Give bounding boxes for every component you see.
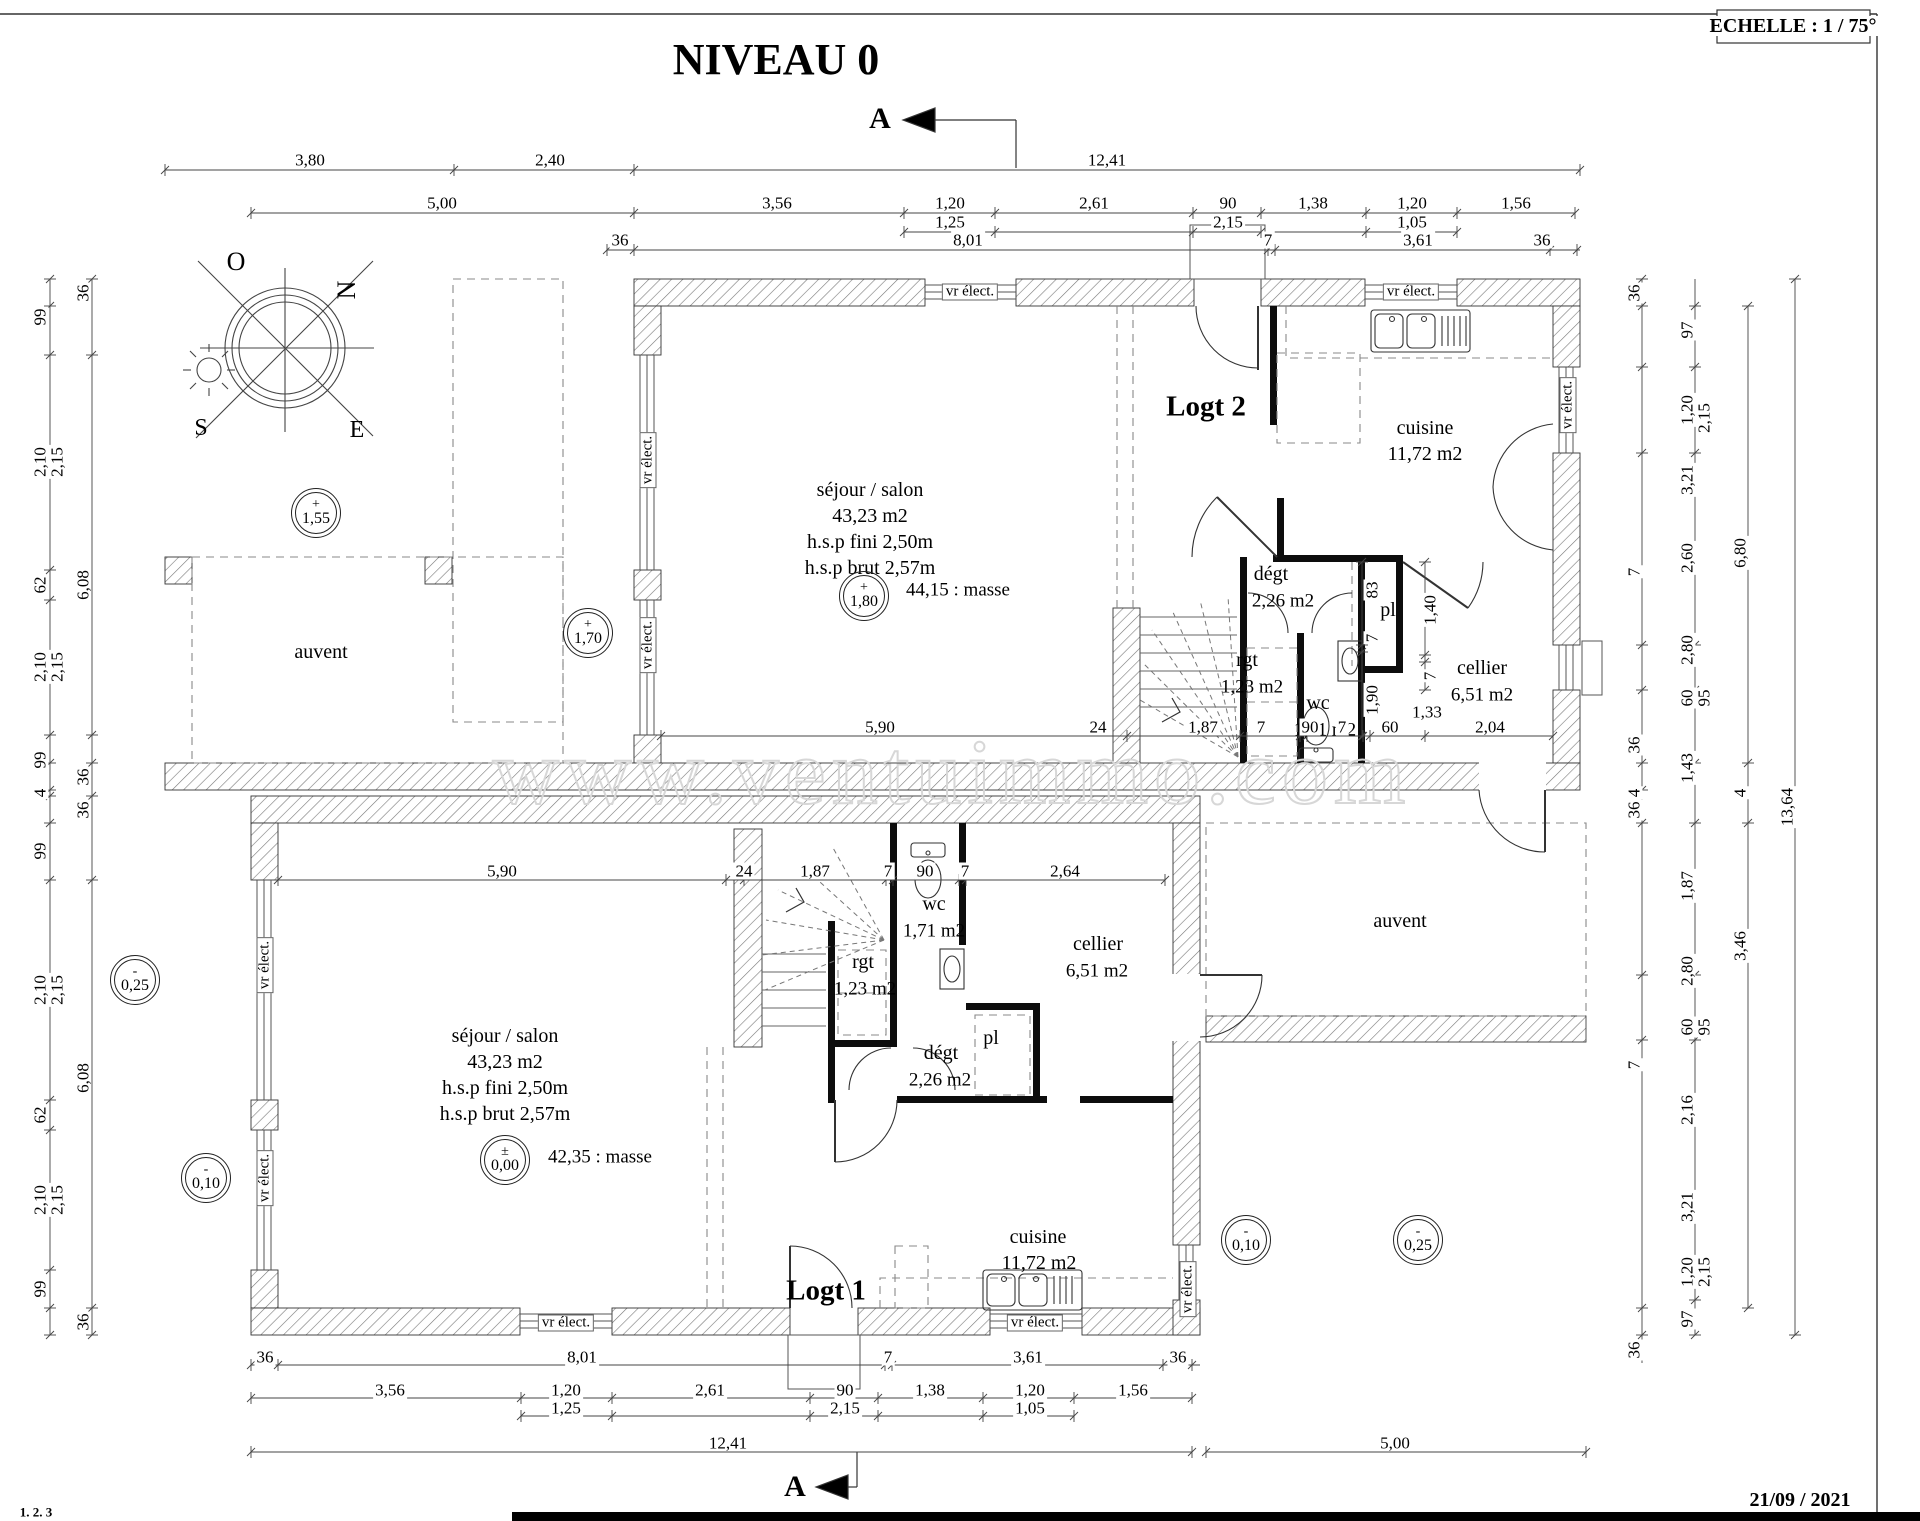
room-label: 1,71 m2 [903, 922, 965, 941]
compass-label: N [334, 281, 360, 300]
dim-label: 7 [1626, 566, 1643, 579]
dim-label: 2,10 [32, 445, 49, 479]
dim-label: 60 [1679, 688, 1696, 709]
dim-label: 95 [1696, 688, 1713, 709]
watermark: www.ventuimmo.com [493, 719, 1412, 825]
room-label: 43,23 m2 [467, 1052, 543, 1072]
dim-label: 1,38 [913, 1382, 947, 1399]
dim-label: 2,80 [1679, 954, 1696, 988]
dim-label: 1,87 [1679, 869, 1696, 903]
dim-label: 3,56 [760, 195, 794, 212]
room-label: h.s.p fini 2,50m [442, 1078, 568, 1098]
date-stamp: 21/09 / 2021 [1747, 1490, 1852, 1510]
dim-label: 7 [1422, 670, 1439, 683]
stairs-logt1 [762, 954, 826, 1026]
dim-label: 99 [32, 750, 49, 771]
level-marker: -0,25 [114, 959, 156, 1001]
window-label: vr élect. [1383, 284, 1439, 301]
window-label: vr élect. [1560, 377, 1577, 433]
dim-label: 3,46 [1732, 929, 1749, 963]
dim-label: 12,41 [707, 1435, 749, 1452]
room-label: 2,26 m2 [909, 1071, 971, 1090]
dim-label: 4 [1626, 787, 1643, 800]
dim-label: 2,61 [1077, 195, 1111, 212]
dim-label: 1,25 [549, 1400, 583, 1417]
level-value: 0,25 [1404, 1238, 1432, 1254]
dim-label: 2,15 [49, 650, 66, 684]
level-marker: -0,25 [1397, 1219, 1439, 1261]
dim-label: 36 [75, 767, 92, 788]
room-label: 6,51 m2 [1066, 962, 1128, 981]
room-label: cuisine [1010, 1227, 1067, 1247]
dim-label: 6,08 [75, 1061, 92, 1095]
room-label: 42,35 : masse [548, 1148, 652, 1167]
dim-label: 3,80 [293, 152, 327, 169]
level-sign: - [204, 1164, 209, 1175]
room-label: rgt [1236, 650, 1258, 670]
dim-label: 62 [32, 575, 49, 596]
dim-label: 24 [734, 863, 755, 880]
room-label: 11,72 m2 [1388, 444, 1463, 464]
window-label: vr élect. [257, 1150, 274, 1206]
level-value: 1,70 [574, 631, 602, 647]
dim-label: 62 [32, 1105, 49, 1126]
dim-label: 36 [1626, 735, 1643, 756]
dim-label: 8,01 [951, 232, 985, 249]
room-label: wc [1306, 693, 1329, 713]
level-sign: - [1416, 1226, 1421, 1237]
dim-label: 7 [1626, 1059, 1643, 1072]
level-marker: -0,10 [185, 1157, 227, 1199]
room-label: cuisine [1397, 418, 1454, 438]
dim-label: 1,20 [1679, 1255, 1696, 1289]
dim-label: 3,56 [373, 1382, 407, 1399]
level-value: 0,10 [1232, 1238, 1260, 1254]
level-value: 0,00 [491, 1158, 519, 1174]
dim-label: 36 [1626, 1340, 1643, 1361]
section-marker-bottom: A [782, 1472, 808, 1502]
level-marker: +1,55 [295, 492, 337, 534]
room-label: 43,23 m2 [832, 506, 908, 526]
dim-label: 60 [1679, 1017, 1696, 1038]
dim-label: 13,64 [1779, 786, 1796, 828]
dim-label: 36 [75, 800, 92, 821]
compass-label: E [350, 418, 365, 442]
dim-label: 2,60 [1679, 541, 1696, 575]
room-label: 44,15 : masse [906, 581, 1010, 600]
floorplan-sheet: www.ventuimmo.com const data = JSON.pars… [0, 0, 1920, 1521]
dim-label: 1,56 [1499, 195, 1533, 212]
dim-label: 2,10 [32, 650, 49, 684]
room-label: cellier [1073, 934, 1123, 954]
dim-label: 8,01 [565, 1349, 599, 1366]
dim-label: 2,61 [693, 1382, 727, 1399]
compass-label: O [227, 249, 246, 275]
dim-label: 90 [835, 1382, 856, 1399]
level-marker: -0,10 [1225, 1219, 1267, 1261]
room-label: rgt [852, 952, 874, 972]
dim-label: 5,90 [485, 863, 519, 880]
dim-label: 6,08 [75, 568, 92, 602]
level-value: 0,25 [121, 978, 149, 994]
dim-label: 36 [1626, 283, 1643, 304]
stair-arrow-icon [786, 888, 804, 912]
dim-label: 3,61 [1011, 1349, 1045, 1366]
window-label: vr élect. [1180, 1261, 1197, 1317]
dim-label: 3,21 [1679, 463, 1696, 497]
dim-label: 2,04 [1473, 719, 1507, 736]
dim-label: 4 [32, 787, 49, 800]
dim-label: 36 [1532, 232, 1553, 249]
dim-label: 99 [32, 307, 49, 328]
room-label: h.s.p brut 2,57m [440, 1104, 571, 1124]
level-value: 1,80 [850, 594, 878, 610]
dim-label: 36 [1168, 1349, 1189, 1366]
kitchen-sink-icon [983, 1270, 1082, 1310]
room-label: 2,26 m2 [1252, 592, 1314, 611]
level-value: 1,55 [302, 511, 330, 527]
window-label: vr élect. [1007, 1315, 1063, 1332]
kitchen-sink-icon [1371, 310, 1470, 352]
dim-label: 7 [882, 1349, 895, 1366]
sun-icon [183, 344, 235, 396]
dim-label: 1,40 [1422, 593, 1439, 627]
dim-label: 36 [610, 232, 631, 249]
dim-label: 1,20 [933, 195, 967, 212]
room-label: h.s.p fini 2,50m [807, 532, 933, 552]
dim-label: 2,40 [533, 152, 567, 169]
room-label: 1,23 m2 [1221, 678, 1283, 697]
dim-label: 7 [959, 863, 972, 880]
dim-label: 2,16 [1679, 1093, 1696, 1127]
dim-label: 1,87 [798, 863, 832, 880]
room-label: 6,51 m2 [1451, 686, 1513, 705]
dim-label: 1,20 [549, 1382, 583, 1399]
dim-label: 2,10 [32, 1183, 49, 1217]
room-label: auvent [1373, 911, 1426, 931]
window-label: vr élect. [942, 284, 998, 301]
dim-label: 99 [32, 1279, 49, 1300]
room-label: Logt 2 [1166, 393, 1246, 422]
dim-label: 1,56 [1116, 1382, 1150, 1399]
level-marker: +1,80 [843, 575, 885, 617]
dim-label: 1,33 [1410, 704, 1444, 721]
window-label: vr élect. [538, 1315, 594, 1332]
level-sign: ± [501, 1146, 509, 1157]
dim-label: 2,15 [828, 1400, 862, 1417]
dim-label: 2,10 [32, 973, 49, 1007]
section-marker-top: A [867, 104, 893, 134]
dim-label: 1,25 [933, 214, 967, 231]
washbasin-icon [940, 949, 964, 989]
level-sign: + [860, 582, 868, 593]
scale-note: ECHELLE : 1 / 75° [1708, 16, 1879, 36]
dim-label: 90 [915, 863, 936, 880]
room-label: 11,72 m2 [1002, 1253, 1077, 1273]
room-label: dégt [924, 1043, 958, 1063]
room-label: pl [1380, 600, 1396, 620]
dim-label: 1,05 [1395, 214, 1429, 231]
dim-label: 4 [1732, 787, 1749, 800]
dim-label: 83 [1364, 580, 1381, 601]
room-label: dégt [1254, 564, 1288, 584]
room-label: 1,23 m2 [834, 980, 896, 999]
dim-label: 97 [1679, 320, 1696, 341]
dim-label: 2,15 [49, 445, 66, 479]
page-title: NIVEAU 0 [671, 38, 882, 82]
room-label: pl [983, 1028, 999, 1048]
dim-label: 36 [75, 283, 92, 304]
dim-label: 2,80 [1679, 633, 1696, 667]
dim-label: 1,20 [1395, 195, 1429, 212]
window-label: vr élect. [257, 937, 274, 993]
level-sign: + [312, 499, 320, 510]
dim-label: 5,00 [425, 195, 459, 212]
dim-label: 1,05 [1013, 1400, 1047, 1417]
bottom-bar [512, 1512, 1920, 1521]
corner-note: 1. 2. 3 [18, 1506, 55, 1519]
dim-label: 12,41 [1086, 152, 1128, 169]
room-label: wc [922, 894, 945, 914]
dim-label: 97 [1679, 1309, 1696, 1330]
dim-label: 3,61 [1401, 232, 1435, 249]
dim-label: 7 [1364, 632, 1381, 645]
dim-label: 36 [75, 1312, 92, 1333]
level-sign: - [1244, 1226, 1249, 1237]
room-label: séjour / salon [452, 1026, 559, 1046]
dim-label: 2,15 [49, 1183, 66, 1217]
dim-label: 90 [1218, 195, 1239, 212]
dim-label: 2,64 [1048, 863, 1082, 880]
room-label: auvent [294, 642, 347, 662]
room-label: cellier [1457, 658, 1507, 678]
room-label: Logt 1 [786, 1277, 866, 1306]
dim-label: 5,00 [1378, 1435, 1412, 1452]
dim-label: 7 [882, 863, 895, 880]
dim-label: 36 [1626, 800, 1643, 821]
window-label: vr élect. [640, 432, 657, 488]
dim-label: 1,38 [1296, 195, 1330, 212]
level-marker: ±0,00 [484, 1139, 526, 1181]
dim-label: 7 [1262, 232, 1275, 249]
dim-label: 2,15 [1696, 1255, 1713, 1289]
dim-label: 1,20 [1013, 1382, 1047, 1399]
level-marker: +1,70 [567, 612, 609, 654]
dim-label: 2,15 [49, 973, 66, 1007]
dim-label: 1,43 [1679, 751, 1696, 785]
compass-label: S [194, 416, 207, 440]
level-sign: - [133, 966, 138, 977]
dim-label: 36 [255, 1349, 276, 1366]
level-sign: + [584, 619, 592, 630]
dim-label: 95 [1696, 1017, 1713, 1038]
dim-label: 1,20 [1679, 393, 1696, 427]
dim-label: 1,90 [1364, 683, 1381, 717]
dim-label: 3,21 [1679, 1190, 1696, 1224]
dim-label: 2,15 [1696, 401, 1713, 435]
window-label: vr élect. [640, 617, 657, 673]
dim-label: 99 [32, 841, 49, 862]
dim-label: 6,80 [1732, 536, 1749, 570]
room-label: séjour / salon [817, 480, 924, 500]
dim-label: 2,15 [1211, 214, 1245, 231]
level-value: 0,10 [192, 1176, 220, 1192]
